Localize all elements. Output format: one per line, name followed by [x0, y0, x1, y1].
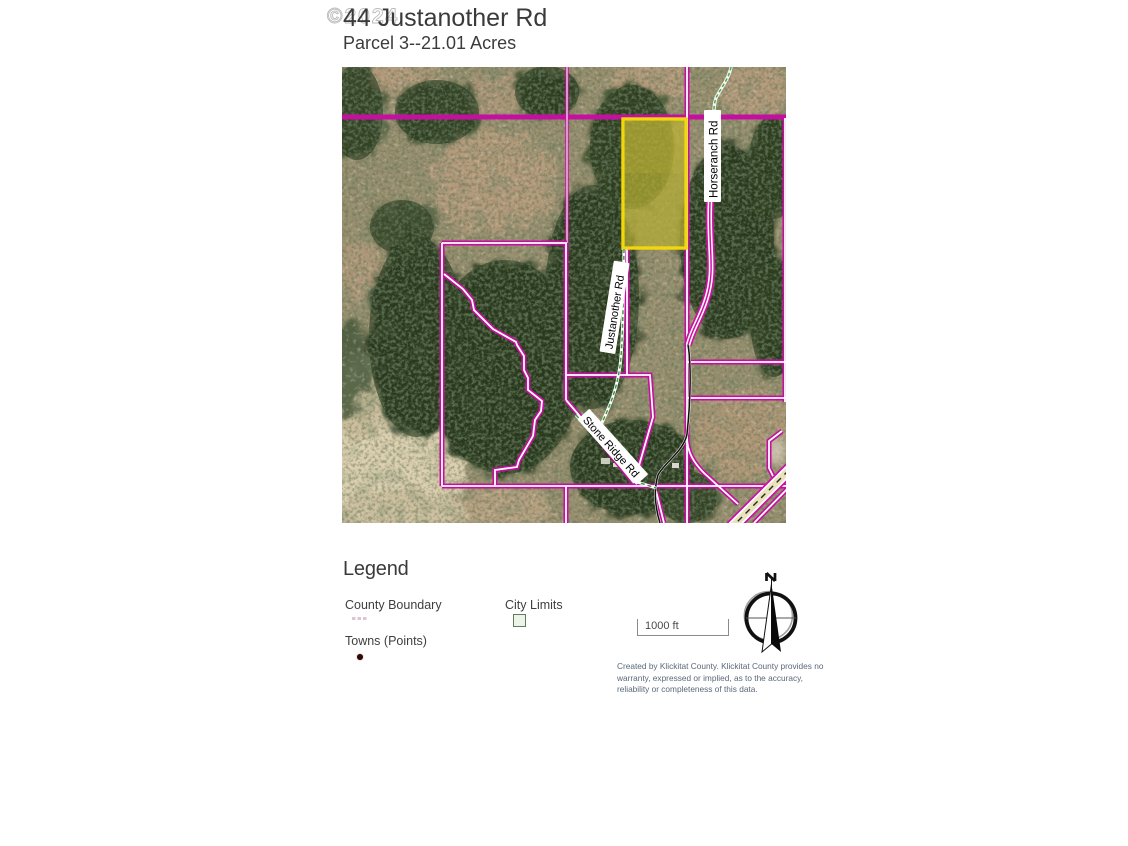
svg-text:Horseranch Rd: Horseranch Rd — [709, 121, 721, 198]
